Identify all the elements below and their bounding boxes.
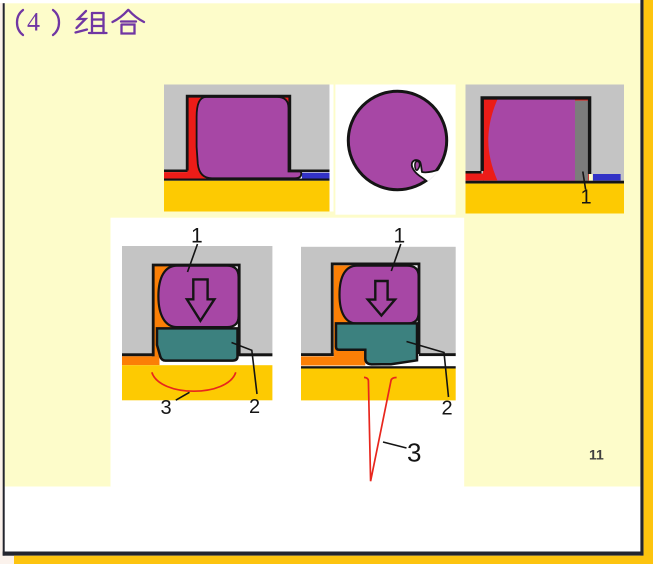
- svg-text:3: 3: [407, 438, 421, 468]
- svg-text:2: 2: [249, 396, 260, 418]
- svg-text:1: 1: [581, 187, 592, 209]
- svg-text:3: 3: [161, 397, 172, 419]
- svg-text:11: 11: [589, 447, 604, 463]
- svg-text:2: 2: [442, 398, 453, 420]
- svg-text:1: 1: [191, 225, 203, 248]
- svg-text:1: 1: [394, 225, 406, 248]
- svg-text:4: 4: [27, 8, 40, 37]
